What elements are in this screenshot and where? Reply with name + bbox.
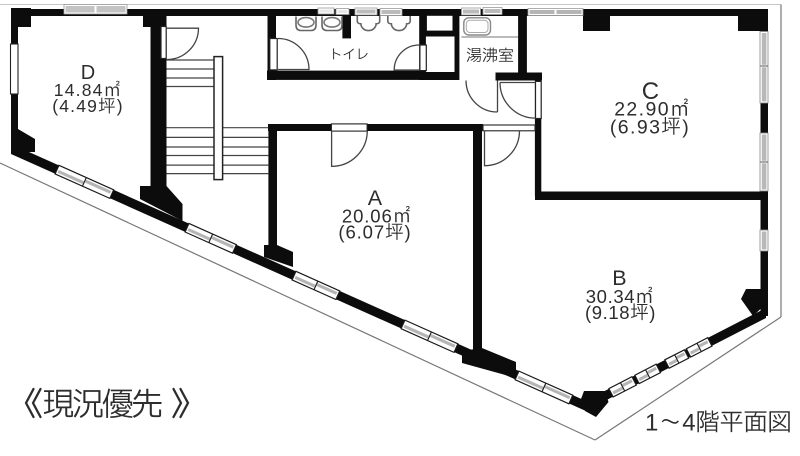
- svg-text:1: 1: [645, 410, 658, 437]
- svg-text:(6.93: (6.93: [610, 116, 661, 138]
- svg-text:(6.07: (6.07: [338, 222, 385, 243]
- svg-text:): ): [405, 222, 412, 243]
- svg-text:): ): [117, 96, 124, 116]
- svg-text:): ): [682, 116, 690, 138]
- svg-text:(4.49: (4.49: [52, 96, 98, 116]
- svg-text:4: 4: [682, 410, 695, 437]
- svg-text:(9.18: (9.18: [585, 302, 630, 323]
- svg-text:): ): [649, 302, 656, 323]
